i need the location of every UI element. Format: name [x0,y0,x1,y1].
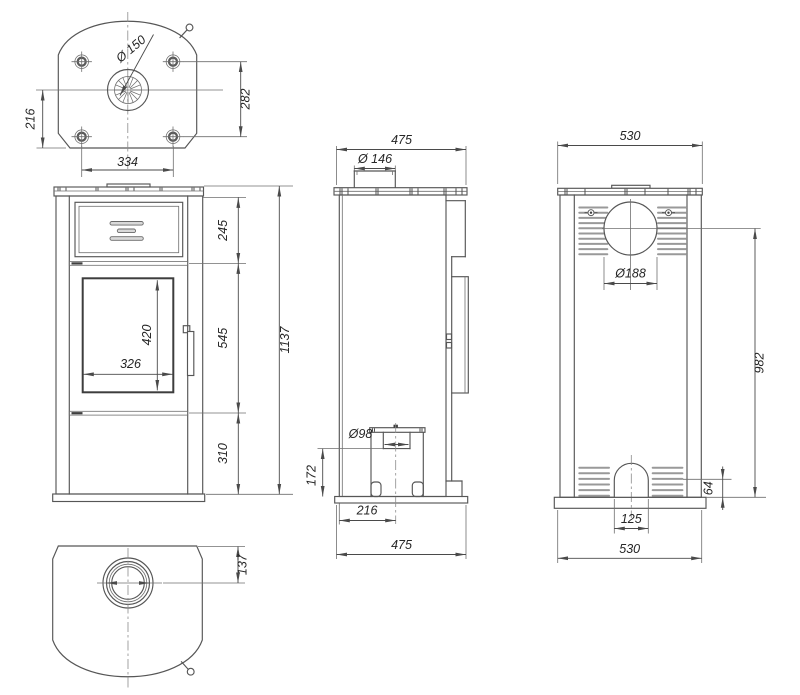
side-handle-mark-a [447,334,452,340]
dim-475-top-label: 475 [391,133,412,147]
front-divider-detail-lower [72,412,83,414]
front-vent-slot-1 [110,222,143,226]
door-handle-bar [188,332,194,376]
dim-146-label: Ø 146 [357,152,392,166]
front-base [53,494,205,502]
front-top-plate [54,187,204,196]
back-lower-slats-left [578,467,610,497]
bottom-view-outline [53,546,203,677]
dim-125-label: 125 [621,512,642,526]
front-view: 420 326 245 545 310 1137 [53,184,293,502]
front-divider-strip-lower [69,411,187,415]
side-door-profile [452,277,469,393]
bolt-hole-top-right [163,52,183,72]
damper-knob-bottom [182,662,195,675]
front-vent-slot-3 [110,237,143,241]
stove-dimension-drawing: Ø 150 216 282 334 [0,0,800,695]
dim-475-bottom-label: 475 [391,538,412,552]
side-body [339,195,468,497]
dim-545-label: 545 [216,328,230,349]
top-view: Ø 150 216 282 334 [24,12,253,177]
dim-216-top-label: 216 [24,109,38,131]
bolt-hole-bottom-left [72,127,92,147]
bolt-hole-top-left [72,52,92,72]
back-lower-slats-right [652,467,684,497]
front-divider-detail-upper [72,262,83,264]
dim-245-label: 245 [216,220,230,242]
technical-drawing-page: Ø 150 216 282 334 [0,0,800,695]
side-handle-mark-b [447,343,452,349]
flue-collar [354,171,395,188]
dim-334-label: 334 [117,155,138,169]
back-view: 530 Ø188 [554,129,766,563]
side-base [335,497,468,504]
front-vent-slot-2 [117,229,135,233]
dim-1137-label: 1137 [278,326,292,354]
dim-530-top-label: 530 [620,129,641,143]
damper-knob-top [180,24,193,37]
air-intake [370,423,425,524]
dim-282-label: 282 [239,89,253,111]
back-base [554,497,706,508]
front-top-plate-tab [107,184,150,187]
intake-foot-right [412,482,423,497]
dim-982-label: 982 [753,353,767,374]
front-divider-strip-upper [69,262,187,266]
dim-530-bottom-label: 530 [619,542,640,556]
dim-420-label: 420 [140,325,154,346]
bottom-view: 137 [53,546,250,689]
intake-foot-left [371,482,381,497]
intake-flange [370,428,425,433]
dim-326-label: 326 [120,357,141,371]
dim-64-label: 64 [702,481,716,495]
dim-310-label: 310 [216,443,230,464]
dim-98-label: Ø98 [348,427,373,441]
dim-216-side-label: 216 [356,504,378,518]
back-screw-right [662,210,675,216]
back-screw-left [585,210,598,216]
side-view: 475 Ø 146 [305,133,469,559]
dim-137-label: 137 [236,553,250,575]
dim-172-label: 172 [305,465,319,486]
back-upper-slats-right [657,207,687,256]
dim-188-label: Ø188 [614,267,646,281]
front-door-glass [83,278,174,392]
bolt-hole-bottom-right [163,127,183,147]
dim-flue-150-label: Ø 150 [113,33,149,66]
